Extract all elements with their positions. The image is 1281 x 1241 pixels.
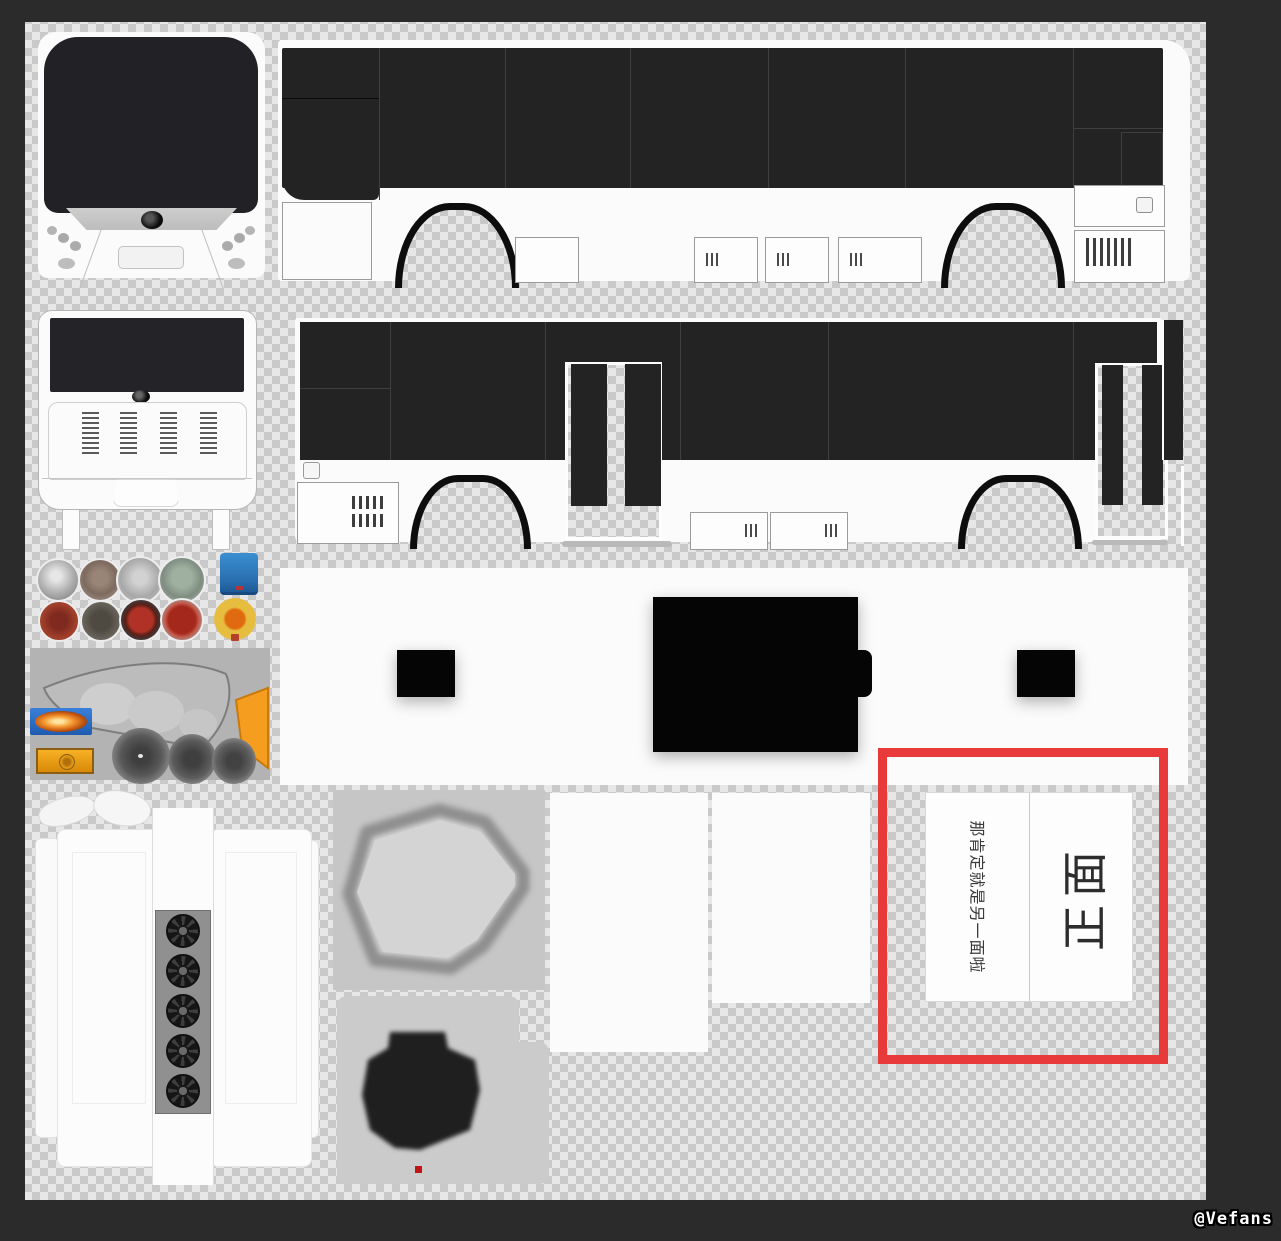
blank-panel-left [550,793,708,1052]
vent-stripes-icon [825,524,840,537]
headlamp-dot [234,233,245,243]
tail-light-red [38,600,80,642]
window-divider [630,48,631,188]
fog-light-swirl [35,711,87,732]
hubcap-steel [116,556,164,604]
bus-front-texture [38,30,265,280]
red-marker-pixel [415,1166,422,1173]
vent-stripes-icon [777,253,792,266]
lens-glint [138,754,143,758]
middle-door-glass-right [625,364,661,506]
blank-panel-right [712,793,870,1003]
projector-lens [112,728,170,784]
window-divider [768,48,769,188]
headlamp-dot [70,241,81,251]
rear-window-glass [50,318,244,392]
panel-inner-line [72,852,146,1104]
middle-door-step-bar [562,541,672,547]
vent-stripes-icon [850,253,865,266]
ac-fan [166,1074,200,1108]
tail-light-red-gray [160,598,204,642]
amber-reflector-texture [36,748,94,774]
ac-fan-strip [155,910,211,1114]
engine-hood-outline [48,402,247,480]
rear-vent-column [160,412,177,454]
fuel-cap-square [1136,197,1153,213]
watermark-text: @Vefans [1194,1209,1273,1229]
projector-lens [212,738,256,784]
rear-vent-column [120,412,137,454]
bus-side-left-texture [295,318,1185,550]
door-glass-seam [282,98,379,99]
window-divider [680,322,681,460]
rear-window-seam [300,388,390,389]
roof-panels-texture [35,793,320,1185]
rear-window-seam [1073,128,1163,129]
tail-light-dark [80,600,122,642]
window-divider [545,322,546,460]
roof-panel-right [210,829,312,1167]
ac-fan [166,1034,200,1068]
pillar-strip-lower [1181,466,1184,546]
texture-atlas-screenshot: 那肯定就是另一面啦 正面 @Vefans [0,0,1281,1241]
tail-light-red-ring [119,598,163,642]
vent-hatch [765,237,829,283]
side-window-band [300,322,1157,460]
license-plate-recess [118,246,184,269]
rear-vent-column [200,412,217,454]
small-cap-square [303,462,320,479]
ac-fan [166,994,200,1028]
roof-ac-unit [653,597,858,752]
rear-door-glass-right [1142,365,1163,505]
bumper-seam [42,478,252,479]
reflector-emblem [59,754,75,770]
panel-grille [352,514,385,527]
engine-vent-grille [1086,238,1134,266]
front-lower-panel [282,202,372,280]
button-tab-mark [231,634,239,641]
projector-lens [168,734,216,784]
annotation-red-box [878,748,1168,1064]
roof-ac-unit-tab [856,650,872,697]
hatch-latch-mark [236,586,243,590]
rear-door-step-bar [1092,540,1168,545]
bumper-flap [113,479,179,507]
ac-fan [166,914,200,948]
window-divider [390,322,391,460]
ac-fan [166,954,200,988]
window-divider [1073,322,1074,460]
foglamp-oval [228,258,245,269]
front-door-glass-section [282,48,379,200]
hubcap-silver [36,558,80,602]
panel-grille [352,496,385,509]
rear-door-glass-left [1102,365,1123,505]
panel-inner-line [225,852,297,1104]
headlamp-dot [222,241,233,251]
blue-hatch-texture [220,553,258,595]
window-divider [379,48,380,200]
roof-panel-left [57,829,161,1167]
rear-vent-column [82,412,99,454]
foglamp-oval [58,258,75,269]
headlight-cluster-texture [30,648,270,780]
yellow-button-texture [214,598,256,640]
rear-window-subpane [1121,132,1163,188]
service-hatch [515,237,579,283]
roof-hatch-small-left [397,650,455,697]
mirror-shell [35,790,98,833]
middle-door-glass-left [571,364,607,506]
fog-light-texture [30,708,92,735]
headlamp-dot [47,226,57,235]
bus-side-right-texture [278,40,1190,281]
window-divider [1073,48,1074,188]
headlamp-dot [245,226,255,235]
roof-hatch-small-right [1017,650,1075,697]
side-window-band [282,48,1163,188]
bus-rear-texture [38,310,258,550]
hubcap-green [158,556,206,604]
window-divider [828,322,829,460]
front-service-panel [297,482,399,544]
window-divider [905,48,906,188]
vent-stripes-icon [745,524,760,537]
vent-hatch [694,237,758,283]
window-divider [505,48,506,188]
windshield-glass [44,37,258,213]
front-emblem [141,211,163,229]
vent-stripes-icon [706,253,721,266]
seat-back-art [333,790,545,1190]
headlamp-dot [58,233,69,243]
seat-textures [333,790,545,1190]
pillar-strip-texture [1162,320,1183,460]
